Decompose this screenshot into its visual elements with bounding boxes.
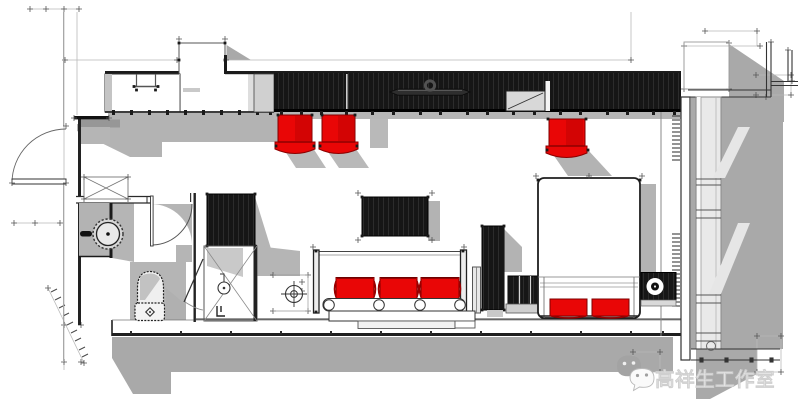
svg-text:高祥生工作室: 高祥生工作室 xyxy=(655,368,775,391)
